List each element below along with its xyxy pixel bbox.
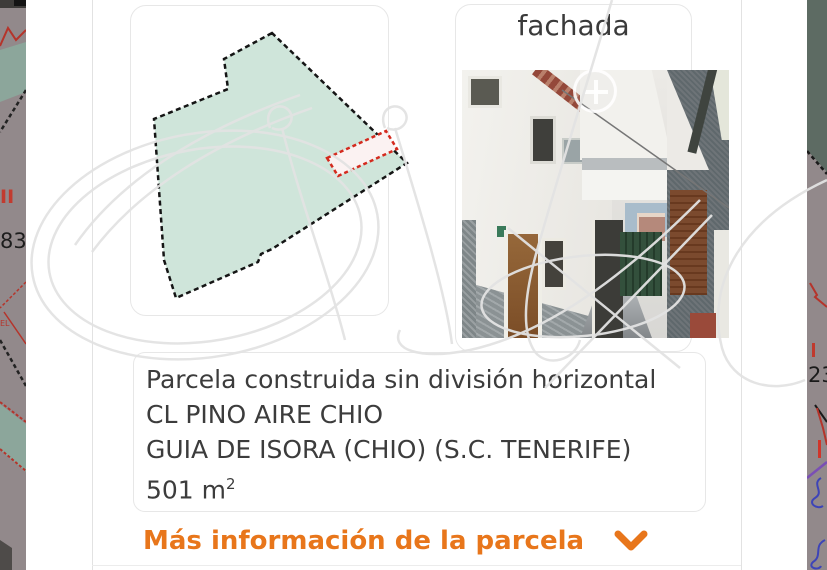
parcel-street-text: CL PINO AIRE CHIO — [146, 397, 705, 432]
panel-border-right — [741, 0, 742, 570]
map-fragment — [14, 0, 26, 6]
plus-horizontal-bar — [584, 90, 608, 94]
map-label-number: 83 — [0, 229, 26, 253]
map-edge-left: II 83 EL — [0, 0, 26, 570]
map-red-tick — [818, 440, 821, 458]
parcel-area-text: 501 m2 — [146, 467, 705, 507]
map-parcel-fragment — [0, 42, 26, 102]
more-info-label: Más información de la parcela — [143, 526, 584, 556]
panel-divider — [92, 565, 741, 566]
more-info-link[interactable]: Más información de la parcela — [143, 526, 648, 556]
area-value: 501 m — [146, 475, 226, 504]
map-label-number: 23 — [808, 363, 827, 387]
parcel-info-card: Parcela construida sin división horizont… — [133, 352, 706, 512]
map-label-roman: II — [0, 186, 14, 208]
parcel-polygon[interactable] — [154, 33, 407, 298]
chevron-down-icon — [614, 530, 648, 553]
map-edge-right: 23 — [807, 0, 827, 570]
map-label-red-small: EL — [0, 319, 10, 328]
parcel-municipality-text: GUIA DE ISORA (CHIO) (S.C. TENERIFE) — [146, 432, 705, 467]
facade-photo[interactable] — [462, 70, 729, 338]
zoom-plus-icon[interactable] — [573, 70, 617, 113]
map-parcel-fragment — [807, 0, 827, 172]
map-red-tick — [812, 343, 815, 357]
parcel-type-text: Parcela construida sin división horizont… — [146, 362, 705, 397]
parcel-sketch — [130, 0, 420, 320]
facade-title: fachada — [456, 9, 691, 42]
panel-border-left — [92, 0, 93, 570]
area-superscript: 2 — [226, 475, 236, 493]
cadastre-parcel-popup: II 83 EL 23 fachada — [0, 0, 827, 570]
